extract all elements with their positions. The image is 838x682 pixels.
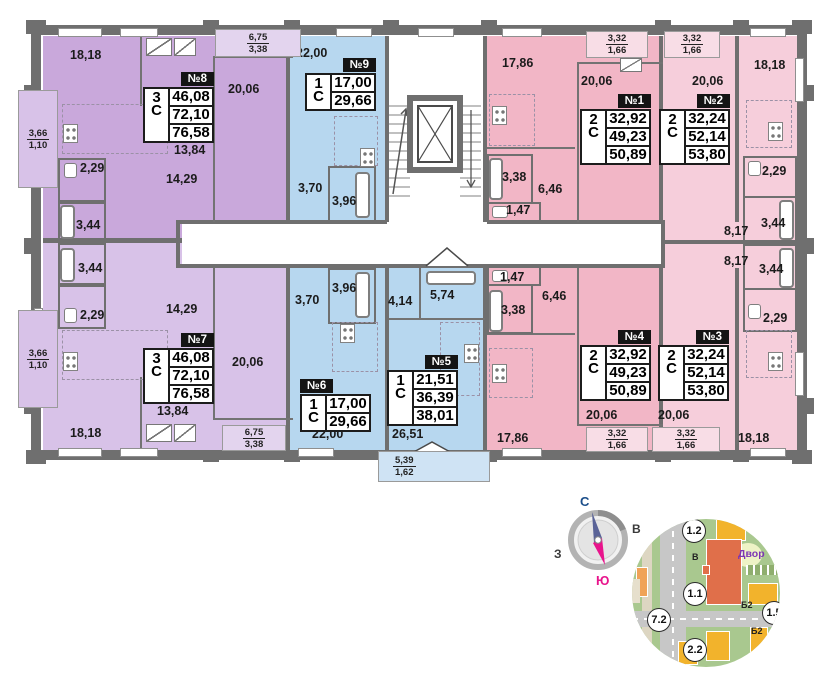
shape: 1С21,51 [388,371,457,389]
apartment-areas-table: 1С17,0029,66 [305,73,376,111]
stove-icon [768,122,783,141]
balcony-area-total: 6,75 [247,32,270,44]
balcony: 3,661,10 [18,310,58,408]
compass-pivot [595,537,601,543]
room-area-label: 1,47 [500,270,524,284]
balcony-area-total: 3,32 [681,33,704,45]
room-area-label: 3,70 [298,181,322,195]
closet [620,58,642,72]
toilet-icon [64,308,77,323]
bathtub-icon [60,248,75,282]
map-yard-label: Двор [738,548,765,560]
window [336,28,372,37]
shape: 2С32,92 [581,110,650,128]
apartment-spec-8[interactable]: №83С46,0872,1076,58 [143,72,214,143]
shape: С [390,387,411,400]
shape: С [303,411,324,424]
wall [735,36,739,222]
area-value-cell: 32,24 [685,110,729,128]
area-value-cell: 72,10 [169,367,213,385]
room-area-label: 20,06 [658,408,689,422]
shape [426,248,468,266]
balcony-area-total: 3,66 [27,348,50,360]
apartment-areas-table: 3С46,0872,1076,58 [143,87,214,143]
closet [146,38,172,56]
stove-icon [768,352,783,371]
shape: С [308,90,329,103]
floor-plan-page: С В З Ю 1.21.17.22.21.5Б2Б2ВДвор 18,1820… [0,0,838,682]
room-area-label: 1,47 [506,203,530,217]
balcony-area-label: 6,753,38 [247,32,270,55]
balcony-area-counted: 1,66 [675,440,698,451]
room-area-label: 26,51 [392,427,423,441]
window [750,448,786,457]
apartment-areas-table: 1С17,0029,66 [300,394,371,432]
room-area-label: 2,29 [762,164,786,178]
window [58,448,102,457]
room-area-label: 13,84 [157,404,188,418]
apartment-number-badge: №4 [618,330,651,344]
wall [286,36,290,224]
map-garages [746,565,778,575]
area-value-cell: 17,00 [326,395,370,413]
area-value-cell: 29,66 [331,92,375,110]
area-value-cell: 32,24 [684,346,728,364]
room-area-label: 8,17 [724,224,748,238]
balcony: 5,391,62 [378,451,490,482]
shape: С [661,362,682,375]
closet [174,38,196,56]
balcony-area-total: 6,75 [243,427,266,439]
balcony-area-counted: 3,38 [247,44,270,55]
stove-icon [360,148,375,167]
wall [661,220,665,268]
map-building [706,631,730,661]
room-area-label: 3,96 [332,194,356,208]
apartment-spec-4[interactable]: №42С32,9249,2350,89 [580,330,651,401]
room-area-label: 3,38 [502,170,526,184]
room-area-label: 17,86 [502,56,533,70]
rooms-count-cell: 1С [306,74,331,110]
balcony-area-label: 3,661,10 [27,128,50,151]
shape: 2С32,92 [581,346,650,364]
area-value-cell: 50,89 [606,146,650,164]
compass-north-label: С [580,494,590,509]
apartment-spec-3[interactable]: №32С32,2452,1453,80 [658,330,729,401]
apartment-areas-table: 2С32,2452,1453,80 [658,345,729,401]
stove-icon [340,324,355,343]
room-area-label: 14,29 [166,302,197,316]
room-area-label: 18,18 [738,431,769,445]
wall [389,318,485,320]
apartment-number-badge: №2 [697,94,730,108]
shape: С [583,126,604,139]
toilet-icon [748,161,761,176]
rooms-count-cell: 2С [660,110,685,164]
area-value-cell: 49,23 [606,128,650,146]
room-area-label: 5,74 [430,288,454,302]
shape: 2С32,24 [659,346,728,364]
area-value-cell: 38,01 [413,407,457,425]
entrance-door-mark [425,246,469,267]
balcony-area-counted: 1,66 [606,440,629,451]
room-area-label: 3,96 [332,281,356,295]
rooms-count-cell: 2С [581,346,606,400]
room-area-label: 18,18 [70,426,101,440]
shape: С [583,362,604,375]
apartment-number-badge: №5 [425,355,458,369]
window [750,28,786,37]
map-building [716,519,746,541]
shape: С [146,104,167,117]
wall [213,418,293,420]
bathtub-icon [355,172,370,218]
shape: 3С46,08 [144,349,213,367]
rooms-count-cell: 3С [144,88,169,142]
room-area-label: 17,86 [497,431,528,445]
shape: 2С32,24 [660,110,729,128]
wall [140,377,142,450]
apartment-number-badge: №8 [181,72,214,86]
area-value-cell: 36,39 [413,389,457,407]
wall [487,147,575,149]
room-area-label: 20,06 [581,74,612,88]
stove-icon [63,352,78,371]
balcony: 3,321,66 [586,427,648,452]
room-area-label: 8,17 [724,254,748,268]
shape: С [146,365,167,378]
corridor [182,224,661,264]
room-area-label: 3,70 [295,293,319,307]
area-value-cell: 21,51 [413,371,457,389]
map-plot-number[interactable]: 7.2 [647,608,671,632]
map-road-dashes [672,519,674,667]
balcony-area-counted: 3,38 [243,439,266,450]
stove-icon [492,364,507,383]
apartment-spec-9[interactable]: №91С17,0029,66 [305,58,376,111]
bathtub-icon [426,271,476,285]
map-plot-number[interactable]: 1.1 [683,582,707,606]
balcony: 3,321,66 [652,427,720,452]
balcony-area-counted: 1,66 [681,45,704,56]
window [120,28,158,37]
wall [140,36,142,106]
balcony-area-total: 3,32 [606,33,629,45]
room-area-label: 20,06 [228,82,259,96]
area-value-cell: 49,23 [606,364,650,382]
kitchen-area [332,322,378,372]
area-value-cell: 46,08 [169,88,213,106]
area-value-cell: 46,08 [169,349,213,367]
room-area-label: 3,38 [501,303,525,317]
wall [419,268,421,320]
window [795,58,804,102]
apartment-number-badge: №6 [300,379,333,393]
wall [577,62,579,222]
wall [286,264,290,450]
room-area-label: 3,44 [759,262,783,276]
bathtub-icon [489,158,503,200]
balcony-area-label: 5,391,62 [393,455,416,478]
apartment-spec-6[interactable]: №61С17,0029,66 [300,379,371,432]
balcony-area-total: 3,32 [606,428,629,440]
stairs-up-arrow [393,110,406,194]
room-area-label: 3,44 [78,261,102,275]
balcony-area-label: 3,661,10 [27,348,50,371]
toilet-icon [64,163,77,178]
apartment-number-badge: №9 [343,58,376,72]
map-building-highlighted [706,539,742,605]
rooms-count-cell: 3С [144,349,169,403]
stair-core [387,36,483,222]
room-area-label: 18,18 [754,58,785,72]
balcony: 3,661,10 [18,90,58,188]
area-value-cell: 29,66 [326,413,370,431]
compass-west-label: З [554,547,562,561]
room-area-label: 20,06 [232,355,263,369]
window [298,448,334,457]
room-area-label: 6,46 [538,182,562,196]
area-value-cell: 52,14 [684,364,728,382]
closet [146,424,172,442]
room-area-label: 4,14 [388,294,412,308]
area-value-cell: 50,89 [606,382,650,400]
balcony: 3,321,66 [586,31,648,58]
balcony-area-counted: 1,62 [393,467,416,478]
room-area-label: 6,46 [542,289,566,303]
map-plot-number[interactable]: 1.2 [682,519,706,543]
room-area-label: 20,06 [586,408,617,422]
map-small-label: Б2 [751,626,762,636]
area-value-cell: 76,58 [169,385,213,403]
apartment-number-badge: №1 [618,94,651,108]
balcony-area-label: 3,321,66 [606,428,629,451]
area-value-cell: 17,00 [331,74,375,92]
map-plot-number[interactable]: 2.2 [683,638,707,662]
apartment-number-badge: №3 [696,330,729,344]
apartment-areas-table: 2С32,9249,2350,89 [580,109,651,165]
wall [176,220,180,268]
wall [577,424,663,426]
rooms-count-cell: 2С [581,110,606,164]
compass-south-label: Ю [596,573,609,588]
room-area-label: 2,29 [80,161,104,175]
room-area-label: 3,44 [761,216,785,230]
balcony-area-total: 3,32 [675,428,698,440]
area-value-cell: 53,80 [684,382,728,400]
map-small-label: Б2 [741,600,752,610]
rooms-count-cell: 1С [388,371,413,425]
apartment-areas-table: 1С21,5136,3938,01 [387,370,458,426]
stove-icon [464,344,479,363]
map-block [632,579,640,603]
stove-icon [492,106,507,125]
balcony-area-label: 6,753,38 [243,427,266,450]
balcony-area-label: 3,321,66 [681,33,704,56]
apartment-spec-2[interactable]: №22С32,2452,1453,80 [659,94,730,165]
area-value-cell: 53,80 [685,146,729,164]
apartment-spec-7[interactable]: №73С46,0872,1076,58 [143,333,214,404]
apartment-areas-table: 2С32,2452,1453,80 [659,109,730,165]
map-building-highlighted [702,565,710,575]
room-area-label: 2,29 [80,308,104,322]
area-value-cell: 76,58 [169,124,213,142]
window [502,28,542,37]
room-area-label: 2,29 [763,311,787,325]
rooms-count-cell: 2С [659,346,684,400]
window [120,448,158,457]
stove-icon [63,124,78,143]
window [58,28,102,37]
rooms-count-cell: 1С [301,395,326,431]
shape: 3С46,08 [144,88,213,106]
toilet-icon [748,304,761,319]
area-value-cell: 72,10 [169,106,213,124]
balcony-area-counted: 1,66 [606,45,629,56]
location-minimap[interactable]: 1.21.17.22.21.5Б2Б2ВДвор [632,519,780,667]
room-area-label: 3,44 [76,218,100,232]
apartment-spec-5[interactable]: №51С21,5136,3938,01 [387,355,458,426]
shape: 1С17,00 [306,74,375,92]
balcony: 6,753,38 [222,425,286,451]
window [502,448,542,457]
balcony: 3,321,66 [664,31,720,58]
area-value-cell: 52,14 [685,128,729,146]
map-small-label: В [692,552,699,562]
room-area-label: 13,84 [174,143,205,157]
bathtub-icon [60,205,75,239]
area-value-cell: 32,92 [606,346,650,364]
shape: 1С17,00 [301,395,370,413]
balcony-area-counted: 1,10 [27,140,50,151]
closet [174,424,196,442]
compass-east-label: В [632,522,641,536]
balcony: 6,753,38 [215,29,301,57]
apartment-number-badge: №7 [181,333,214,347]
room-area-label: 18,18 [70,48,101,62]
window [795,352,804,396]
shape: С [662,126,683,139]
balcony-area-label: 3,321,66 [675,428,698,451]
area-value-cell: 32,92 [606,110,650,128]
apartment-areas-table: 3С46,0872,1076,58 [143,348,214,404]
balcony-area-label: 3,321,66 [606,33,629,56]
balcony-area-total: 3,66 [27,128,50,140]
room-area-label: 20,06 [692,74,723,88]
balcony-area-counted: 1,10 [27,360,50,371]
map-plot-number[interactable]: 1.5 [762,601,780,625]
apartment-areas-table: 2С32,9249,2350,89 [580,345,651,401]
apartment-spec-1[interactable]: №12С32,9249,2350,89 [580,94,651,165]
balcony-area-total: 5,39 [393,455,416,467]
wall [735,268,739,450]
wall [577,268,579,426]
room-area-label: 14,29 [166,172,197,186]
bathtub-icon [355,272,370,318]
